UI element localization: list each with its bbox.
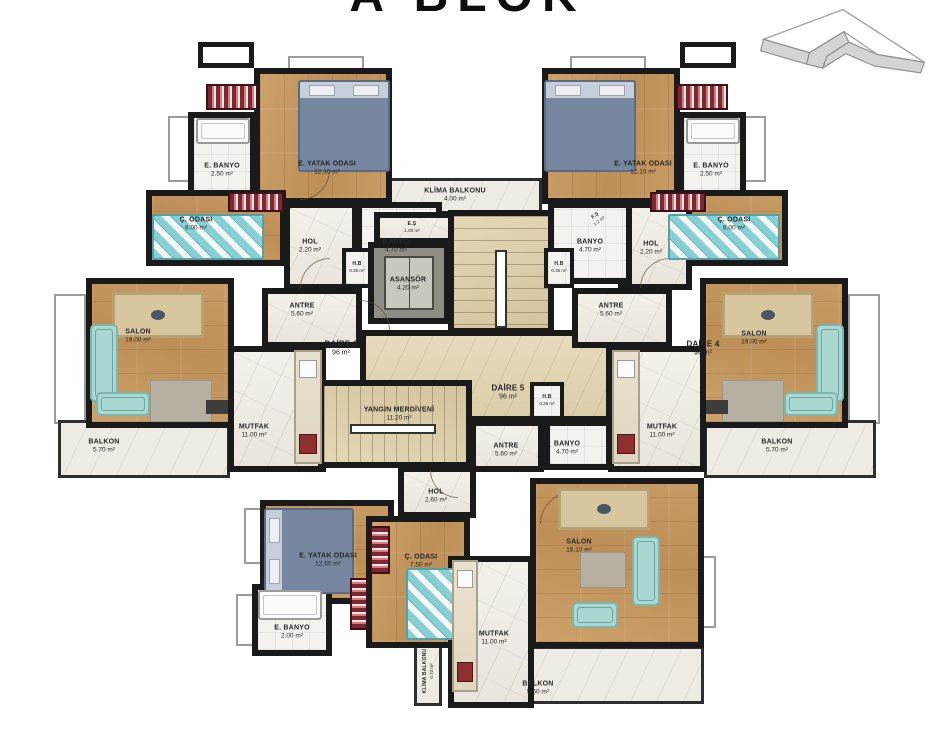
rug bbox=[150, 380, 212, 422]
room-label: H.B0.35 m² bbox=[539, 394, 554, 406]
window-slab-ebanyo-right bbox=[744, 116, 766, 182]
apartment-label: DAİRE 596 m² bbox=[492, 384, 525, 403]
room-label: BANYO4.70 m² bbox=[577, 238, 603, 255]
shower-tub bbox=[196, 118, 250, 144]
room-label: BANYO4.70 m² bbox=[383, 238, 409, 255]
dining-table bbox=[722, 292, 814, 338]
shaft-top-right bbox=[680, 42, 736, 68]
sofa bbox=[632, 536, 660, 606]
window-slab-left-side bbox=[54, 294, 86, 424]
room-label: HOL2.20 m² bbox=[640, 240, 662, 257]
apartment-label: DAİRE 696 m² bbox=[325, 340, 358, 359]
room-label: E. YATAK ODASI12.10 m² bbox=[298, 160, 356, 177]
room-label: MUTFAK11.00 m² bbox=[479, 630, 509, 647]
room-label: Ç. ODASI8.00 m² bbox=[718, 216, 751, 233]
shower-tub bbox=[258, 590, 322, 620]
sofa bbox=[784, 392, 838, 416]
room-label: ASANSÖR4.20 m² bbox=[390, 276, 426, 293]
double-bed bbox=[298, 80, 390, 172]
shower-tub bbox=[686, 118, 740, 144]
room-label: ANTRE5.60 m² bbox=[598, 302, 623, 319]
room-label: H.B0.35 m² bbox=[551, 261, 566, 273]
room-label: E. BANYO2.50 m² bbox=[693, 162, 728, 179]
dining-table bbox=[558, 488, 650, 530]
room-label: Ç. ODASI7.50 m² bbox=[405, 553, 438, 570]
shaft-top-left bbox=[198, 42, 254, 68]
room-label: ANTRE5.60 m² bbox=[493, 442, 518, 459]
room-label: Ç. ODASI8.00 m² bbox=[180, 216, 213, 233]
window-slab-right-side bbox=[848, 294, 880, 424]
double-bed bbox=[544, 80, 636, 172]
wardrobe bbox=[350, 578, 368, 630]
wardrobe bbox=[650, 192, 706, 212]
sofa bbox=[572, 602, 618, 628]
room-label: BALKON5.70 m² bbox=[761, 438, 792, 455]
room-label: E. YATAK ODASI12.60 m² bbox=[299, 552, 357, 569]
sofa bbox=[96, 392, 150, 416]
floor-plan-page: A BLOK E. BANYO2.50 m²E. YATAK ODASI12.1… bbox=[0, 0, 935, 735]
kitchen-counter bbox=[452, 560, 478, 692]
room-label: KLİMA BALKONU4.00 m² bbox=[424, 187, 485, 204]
room-label: HOL2.20 m² bbox=[299, 238, 321, 255]
balkon-left bbox=[58, 420, 230, 478]
stair-handrail bbox=[350, 424, 436, 434]
apartment-label: DAİRE 496 m² bbox=[687, 340, 720, 359]
room-label: HOL2.60 m² bbox=[425, 488, 447, 505]
room-label: MUTFAK11.00 m² bbox=[647, 423, 677, 440]
tv-unit bbox=[706, 400, 728, 414]
room-label: BANYO4.70 m² bbox=[554, 440, 580, 457]
window-slab-ebanyo-left bbox=[168, 116, 190, 182]
room-label: ANTRE5.60 m² bbox=[289, 302, 314, 319]
wardrobe bbox=[206, 84, 258, 110]
room-label: E. BANYO2.50 m² bbox=[204, 162, 239, 179]
wardrobe bbox=[370, 526, 390, 574]
rug bbox=[722, 380, 784, 422]
wardrobe bbox=[228, 192, 284, 212]
tv-unit bbox=[206, 400, 228, 414]
room-label: E.Ş1.00 m² bbox=[404, 221, 419, 233]
room-label: SALON19.00 m² bbox=[125, 328, 151, 345]
room-label: H.B0.35 m² bbox=[349, 261, 364, 273]
kitchen-counter bbox=[612, 350, 640, 464]
room-label: E. BANYO2.00 m² bbox=[274, 624, 309, 641]
room-label: KLİMA BALKONU0.73 m² bbox=[422, 649, 434, 694]
rug bbox=[580, 552, 626, 588]
room-label: BALKON5.50 m² bbox=[522, 680, 553, 697]
room-label: YANGIN MERDİVENİ11.20 m² bbox=[364, 406, 435, 423]
wardrobe bbox=[676, 84, 728, 110]
room-label: BALKON5.70 m² bbox=[88, 438, 119, 455]
room-label: SALON18.10 m² bbox=[566, 538, 592, 555]
kitchen-counter bbox=[294, 350, 322, 464]
sofa bbox=[816, 324, 844, 402]
room-label: SALON19.00 m² bbox=[741, 330, 767, 347]
room-label: MUTFAK11.00 m² bbox=[239, 423, 269, 440]
floor-plan: E. BANYO2.50 m²E. YATAK ODASI12.10 m²Ç. … bbox=[0, 0, 935, 735]
sofa bbox=[90, 324, 118, 402]
stair-handrail bbox=[495, 250, 507, 328]
room-label: E. YATAK ODASI12.10 m² bbox=[614, 160, 672, 177]
